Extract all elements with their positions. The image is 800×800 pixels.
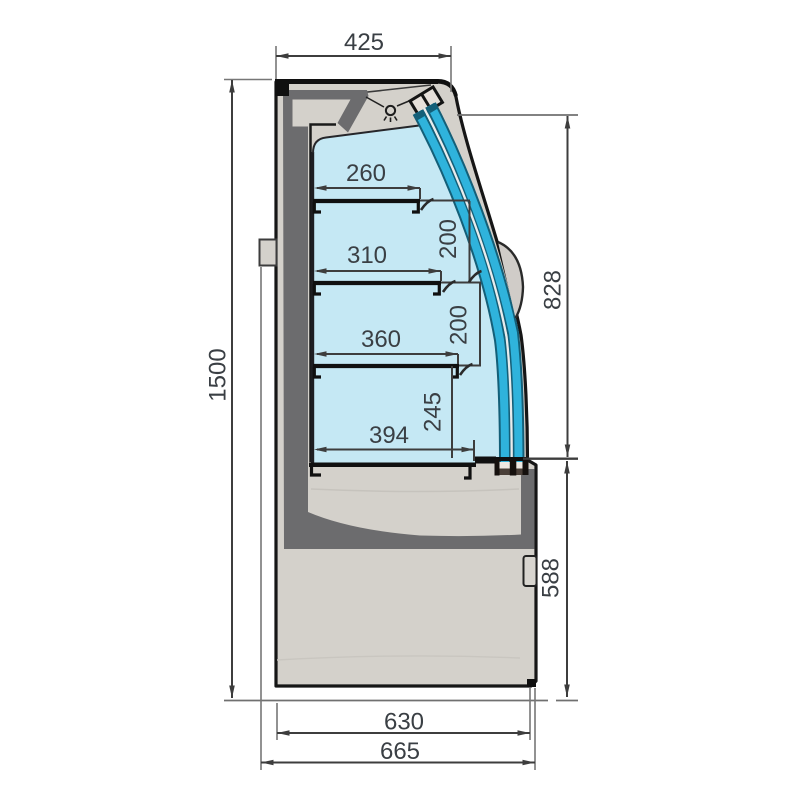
svg-text:200: 200: [435, 219, 462, 259]
svg-text:665: 665: [380, 738, 420, 765]
svg-text:425: 425: [344, 29, 384, 56]
svg-text:200: 200: [446, 305, 473, 345]
svg-text:260: 260: [346, 160, 386, 187]
svg-text:360: 360: [361, 326, 401, 353]
svg-text:588: 588: [538, 558, 565, 598]
svg-text:394: 394: [369, 422, 409, 449]
svg-text:245: 245: [420, 392, 447, 432]
svg-text:310: 310: [347, 242, 387, 269]
svg-text:1500: 1500: [205, 348, 232, 401]
svg-text:828: 828: [540, 270, 567, 310]
svg-text:630: 630: [384, 709, 424, 736]
